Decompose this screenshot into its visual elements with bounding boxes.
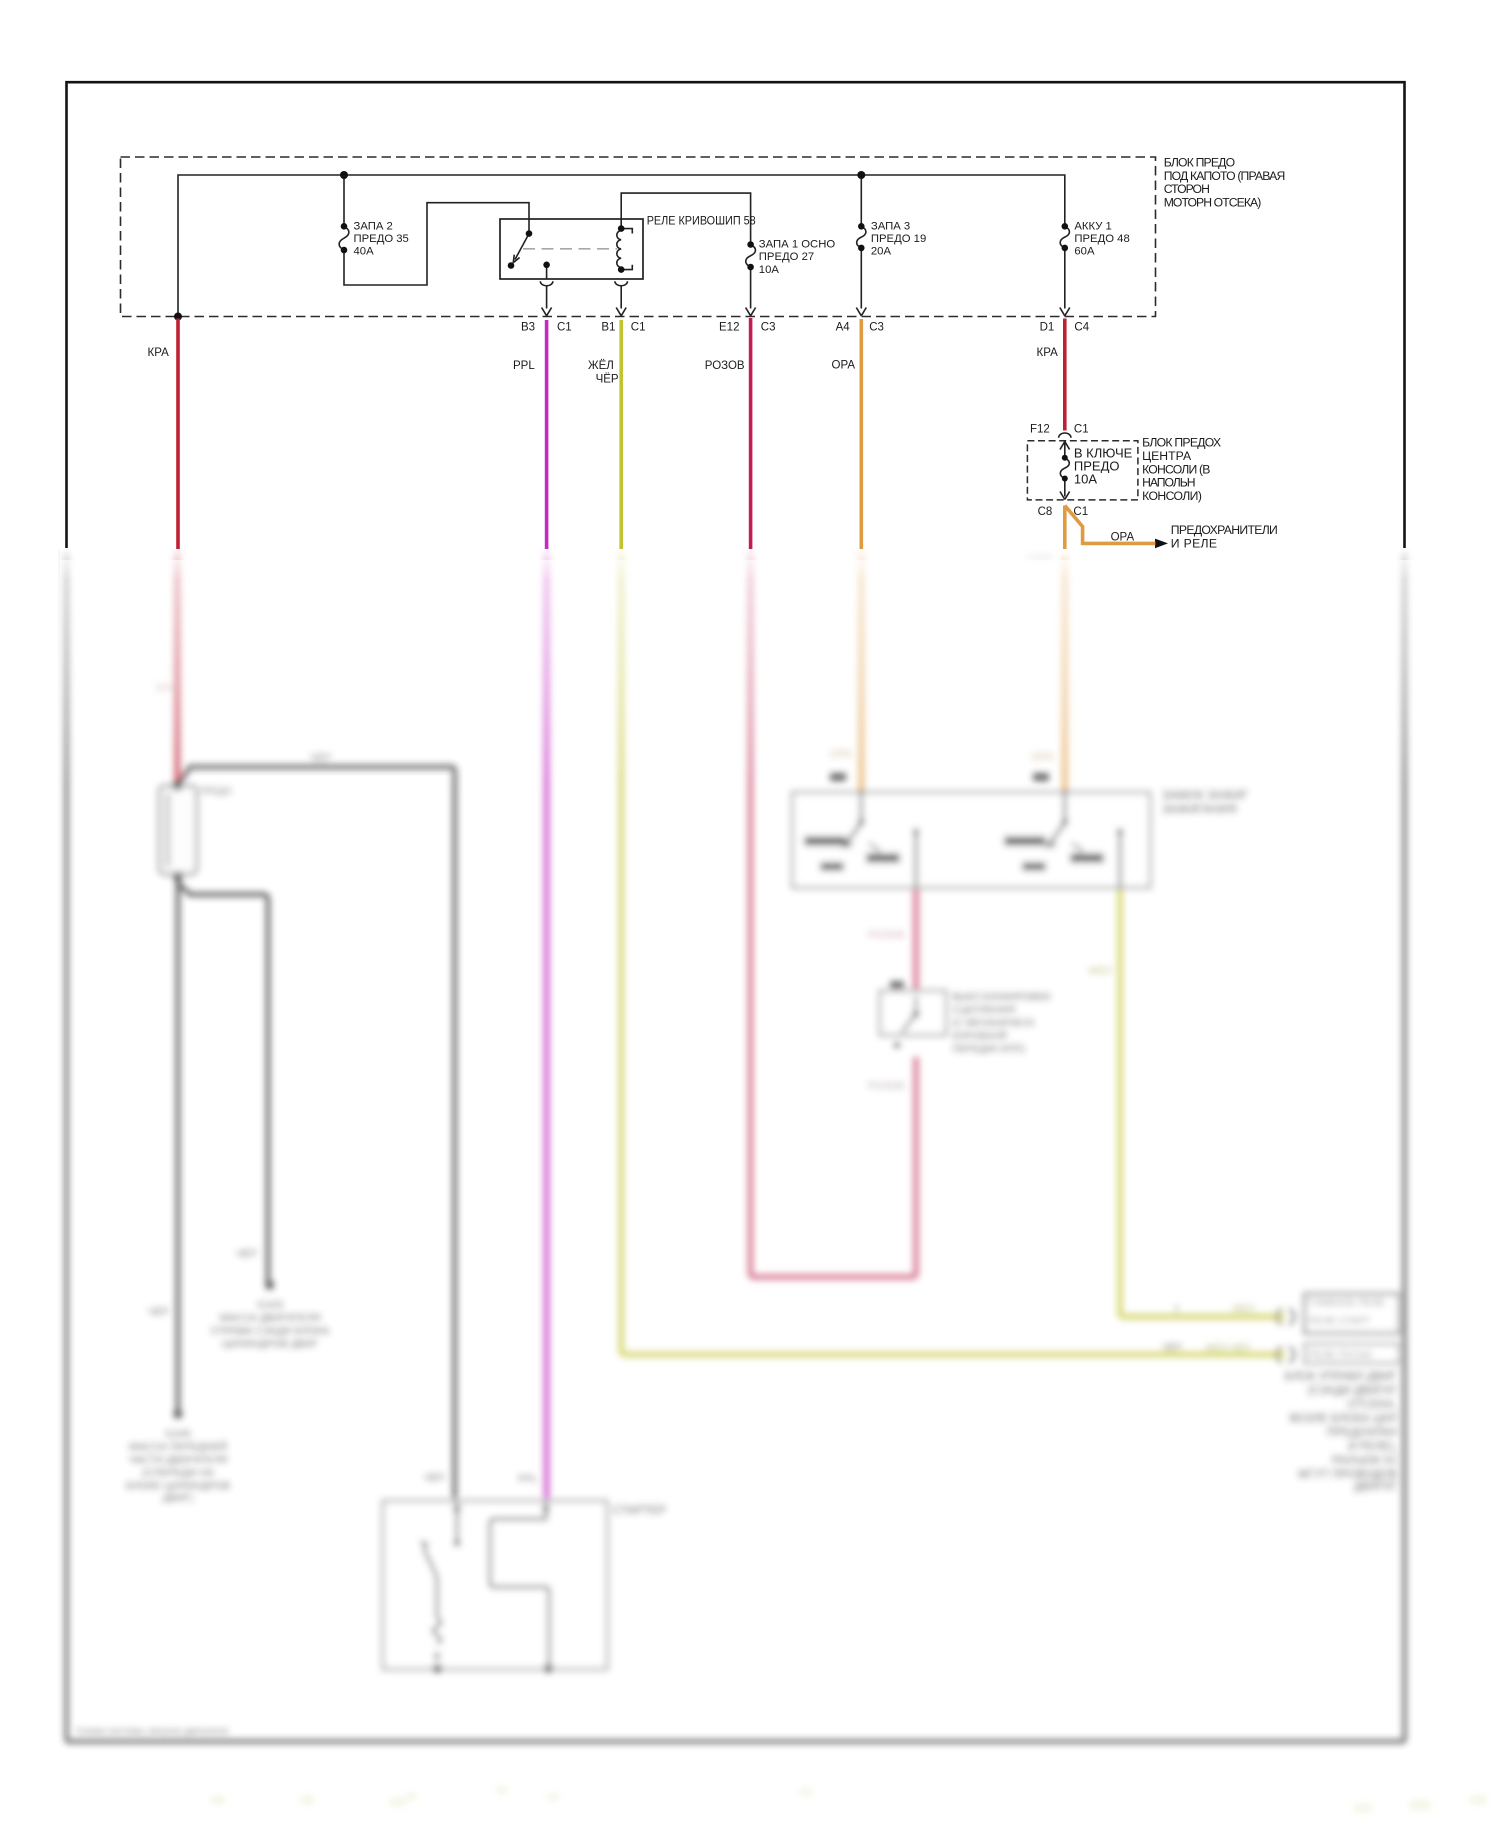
svg-text:C1: C1: [1073, 506, 1088, 518]
svg-text:ЖЁЛ: ЖЁЛ: [1088, 965, 1112, 977]
svg-text:A4: A4: [836, 322, 851, 334]
svg-text:РОЗОВ: РОЗОВ: [868, 1080, 904, 1092]
svg-text:ГЛАВНОЕ РЕЛЕ: ГЛАВНОЕ РЕЛЕ: [1309, 1298, 1385, 1309]
svg-text:РАЗЪЕМ X2: РАЗЪЕМ X2: [1332, 1455, 1397, 1467]
svg-text:КРА: КРА: [1037, 347, 1059, 359]
svg-text:ЧАСТИ ДВИГАТЕЛЯ: ЧАСТИ ДВИГАТЕЛЯ: [129, 1454, 228, 1466]
svg-text:ЗАПА 2: ЗАПА 2: [354, 220, 393, 232]
svg-text:C1: C1: [1074, 424, 1089, 436]
svg-text:B3: B3: [521, 322, 535, 334]
svg-text:ЖГУТ ПРОВОДОВ: ЖГУТ ПРОВОДОВ: [1298, 1469, 1398, 1481]
svg-text:ДВИГАТ: ДВИГАТ: [1354, 1481, 1397, 1493]
svg-text:РЕЛЕ ПУСКА: РЕЛЕ ПУСКА: [1309, 1350, 1372, 1361]
svg-text:СЦЕПЛЕНИЯ: СЦЕПЛЕНИЯ: [952, 1005, 1015, 1016]
svg-text:ПРЕДОХРАН: ПРЕДОХРАН: [1327, 1427, 1397, 1439]
svg-text:БЛОК УПРАВЛ ДВИГ: БЛОК УПРАВЛ ДВИГ: [1285, 1371, 1398, 1383]
svg-text:(СПЕРЕДИ НА: (СПЕРЕДИ НА: [142, 1467, 214, 1479]
svg-text:1: 1: [1174, 1304, 1180, 1315]
svg-text:Схема системы запуска двигател: Схема системы запуска двигателя: [76, 1726, 228, 1737]
svg-text:ОРА: ОРА: [832, 360, 856, 372]
svg-text:МАССА ПЕРЕДНЕЙ: МАССА ПЕРЕДНЕЙ: [129, 1440, 227, 1453]
svg-text:C3: C3: [761, 322, 776, 334]
svg-text:E12: E12: [719, 322, 739, 334]
svg-text:C8: C8: [1038, 506, 1053, 518]
svg-text:40А: 40А: [354, 246, 375, 258]
svg-text:КРА: КРА: [148, 347, 170, 359]
svg-text:БЛОКЕ ЦИЛИНДРОВ: БЛОКЕ ЦИЛИНДРОВ: [126, 1480, 230, 1492]
svg-text:ЦЕНТРА: ЦЕНТРА: [1142, 449, 1192, 463]
svg-text:ПРЕДО 48: ПРЕДО 48: [1074, 233, 1129, 245]
svg-text:ВОЗЛЕ БЛОКА ЦИЛ: ВОЗЛЕ БЛОКА ЦИЛ: [1290, 1413, 1397, 1425]
svg-text:ОРА: ОРА: [1111, 532, 1135, 544]
svg-text:ВЫКЛ БЛОКИРОВКИ: ВЫКЛ БЛОКИРОВКИ: [952, 992, 1051, 1003]
svg-text:РОЗОВ: РОЗОВ: [705, 360, 745, 372]
svg-text:БЛОК ПРЕДОХ: БЛОК ПРЕДОХ: [1142, 436, 1221, 450]
svg-text:ЗАПА 1 ОСНО: ЗАПА 1 ОСНО: [759, 239, 836, 251]
svg-text:БЛОК ПРЕДО: БЛОК ПРЕДО: [1164, 156, 1235, 170]
svg-text:СПРАВА СЗАДИ БЛОКА: СПРАВА СЗАДИ БЛОКА: [211, 1325, 330, 1337]
svg-text:B1: B1: [601, 322, 615, 334]
svg-text:ПРЕДО 35: ПРЕДО 35: [354, 233, 409, 245]
svg-text:(СЗАДИ ДВИГАТ: (СЗАДИ ДВИГАТ: [1308, 1385, 1397, 1397]
svg-text:ЖЁЛ: ЖЁЛ: [1232, 1303, 1254, 1315]
svg-text:НАПОЛЬН: НАПОЛЬН: [1142, 476, 1195, 490]
svg-text:АККУ 1: АККУ 1: [1074, 220, 1111, 232]
svg-text:ЗАПА 3: ЗАПА 3: [871, 220, 910, 232]
svg-text:ЖЁЛ: ЖЁЛ: [588, 360, 614, 372]
svg-text:ЧЁР: ЧЁР: [424, 1472, 445, 1484]
svg-text:G103: G103: [257, 1299, 283, 1311]
svg-text:ДВИГ): ДВИГ): [163, 1492, 194, 1504]
svg-text:МАССА ДВИГАТЕЛЯ: МАССА ДВИГАТЕЛЯ: [219, 1312, 320, 1324]
svg-text:C4: C4: [1074, 322, 1089, 334]
svg-text:PPL: PPL: [518, 1473, 538, 1485]
svg-text:(С МЕХАНИЧЕСК: (С МЕХАНИЧЕСК: [952, 1018, 1035, 1029]
svg-text:C1: C1: [631, 322, 646, 334]
svg-text:СТАРТЕР: СТАРТЕР: [612, 1503, 666, 1517]
svg-text:КОНСОЛИ (В: КОНСОЛИ (В: [1142, 462, 1210, 476]
svg-text:ПОД КАПОТО (ПРАВАЯ: ПОД КАПОТО (ПРАВАЯ: [1164, 169, 1286, 183]
svg-text:ЗАМОК ЗАЖИГ: ЗАМОК ЗАЖИГ: [1162, 788, 1249, 802]
svg-text:ОТСЕКА,: ОТСЕКА,: [1347, 1399, 1397, 1411]
svg-text:ЗАЖИГАНИЯ: ЗАЖИГАНИЯ: [1162, 802, 1237, 816]
svg-text:ЧЁР: ЧЁР: [236, 1248, 257, 1260]
svg-text:МОТОРН ОТСЕКА): МОТОРН ОТСЕКА): [1164, 195, 1262, 209]
svg-text:G105: G105: [165, 1428, 191, 1440]
svg-text:ЧЁР: ЧЁР: [596, 374, 619, 386]
svg-text:ПРЕДО 19: ПРЕДО 19: [871, 233, 926, 245]
svg-text:10А: 10А: [1074, 472, 1097, 487]
svg-text:КОРОБКОЙ: КОРОБКОЙ: [952, 1029, 1007, 1042]
svg-text:СТОРОН: СТОРОН: [1164, 182, 1210, 196]
svg-text:ЧЁР: ЧЁР: [148, 1306, 169, 1318]
svg-text:PPL: PPL: [513, 360, 535, 372]
svg-text:И РЕЛЕ),: И РЕЛЕ),: [1348, 1441, 1397, 1453]
svg-text:20А: 20А: [871, 246, 892, 258]
svg-text:ЦИЛИНДРОВ ДВИГ: ЦИЛИНДРОВ ДВИГ: [222, 1338, 319, 1350]
svg-text:ПРЕДО 27: ПРЕДО 27: [759, 251, 814, 263]
svg-text:C3: C3: [869, 322, 884, 334]
svg-text:ПРЕДОХРАНИТЕЛИ: ПРЕДОХРАНИТЕЛИ: [1171, 523, 1278, 537]
svg-text:10А: 10А: [759, 264, 780, 276]
svg-text:ЖЁЛ ЧЁР: ЖЁЛ ЧЁР: [1205, 1342, 1251, 1354]
svg-text:РЕЛЕ СТАРТ: РЕЛЕ СТАРТ: [1309, 1316, 1370, 1327]
svg-text:C1: C1: [557, 322, 572, 334]
svg-text:ЧЁР: ЧЁР: [1162, 1342, 1182, 1354]
svg-text:60А: 60А: [1074, 246, 1095, 258]
svg-text:КОНСОЛИ): КОНСОЛИ): [1142, 489, 1202, 503]
svg-text:И РЕЛЕ: И РЕЛЕ: [1171, 537, 1217, 551]
svg-text:D1: D1: [1040, 322, 1055, 334]
svg-text:ПЕРЕДАЧ КПП): ПЕРЕДАЧ КПП): [952, 1044, 1025, 1055]
svg-text:F12: F12: [1030, 424, 1050, 436]
svg-text:РОЗОВ: РОЗОВ: [868, 929, 904, 941]
svg-text:РЕЛЕ КРИВОШИП 58: РЕЛЕ КРИВОШИП 58: [647, 214, 756, 228]
